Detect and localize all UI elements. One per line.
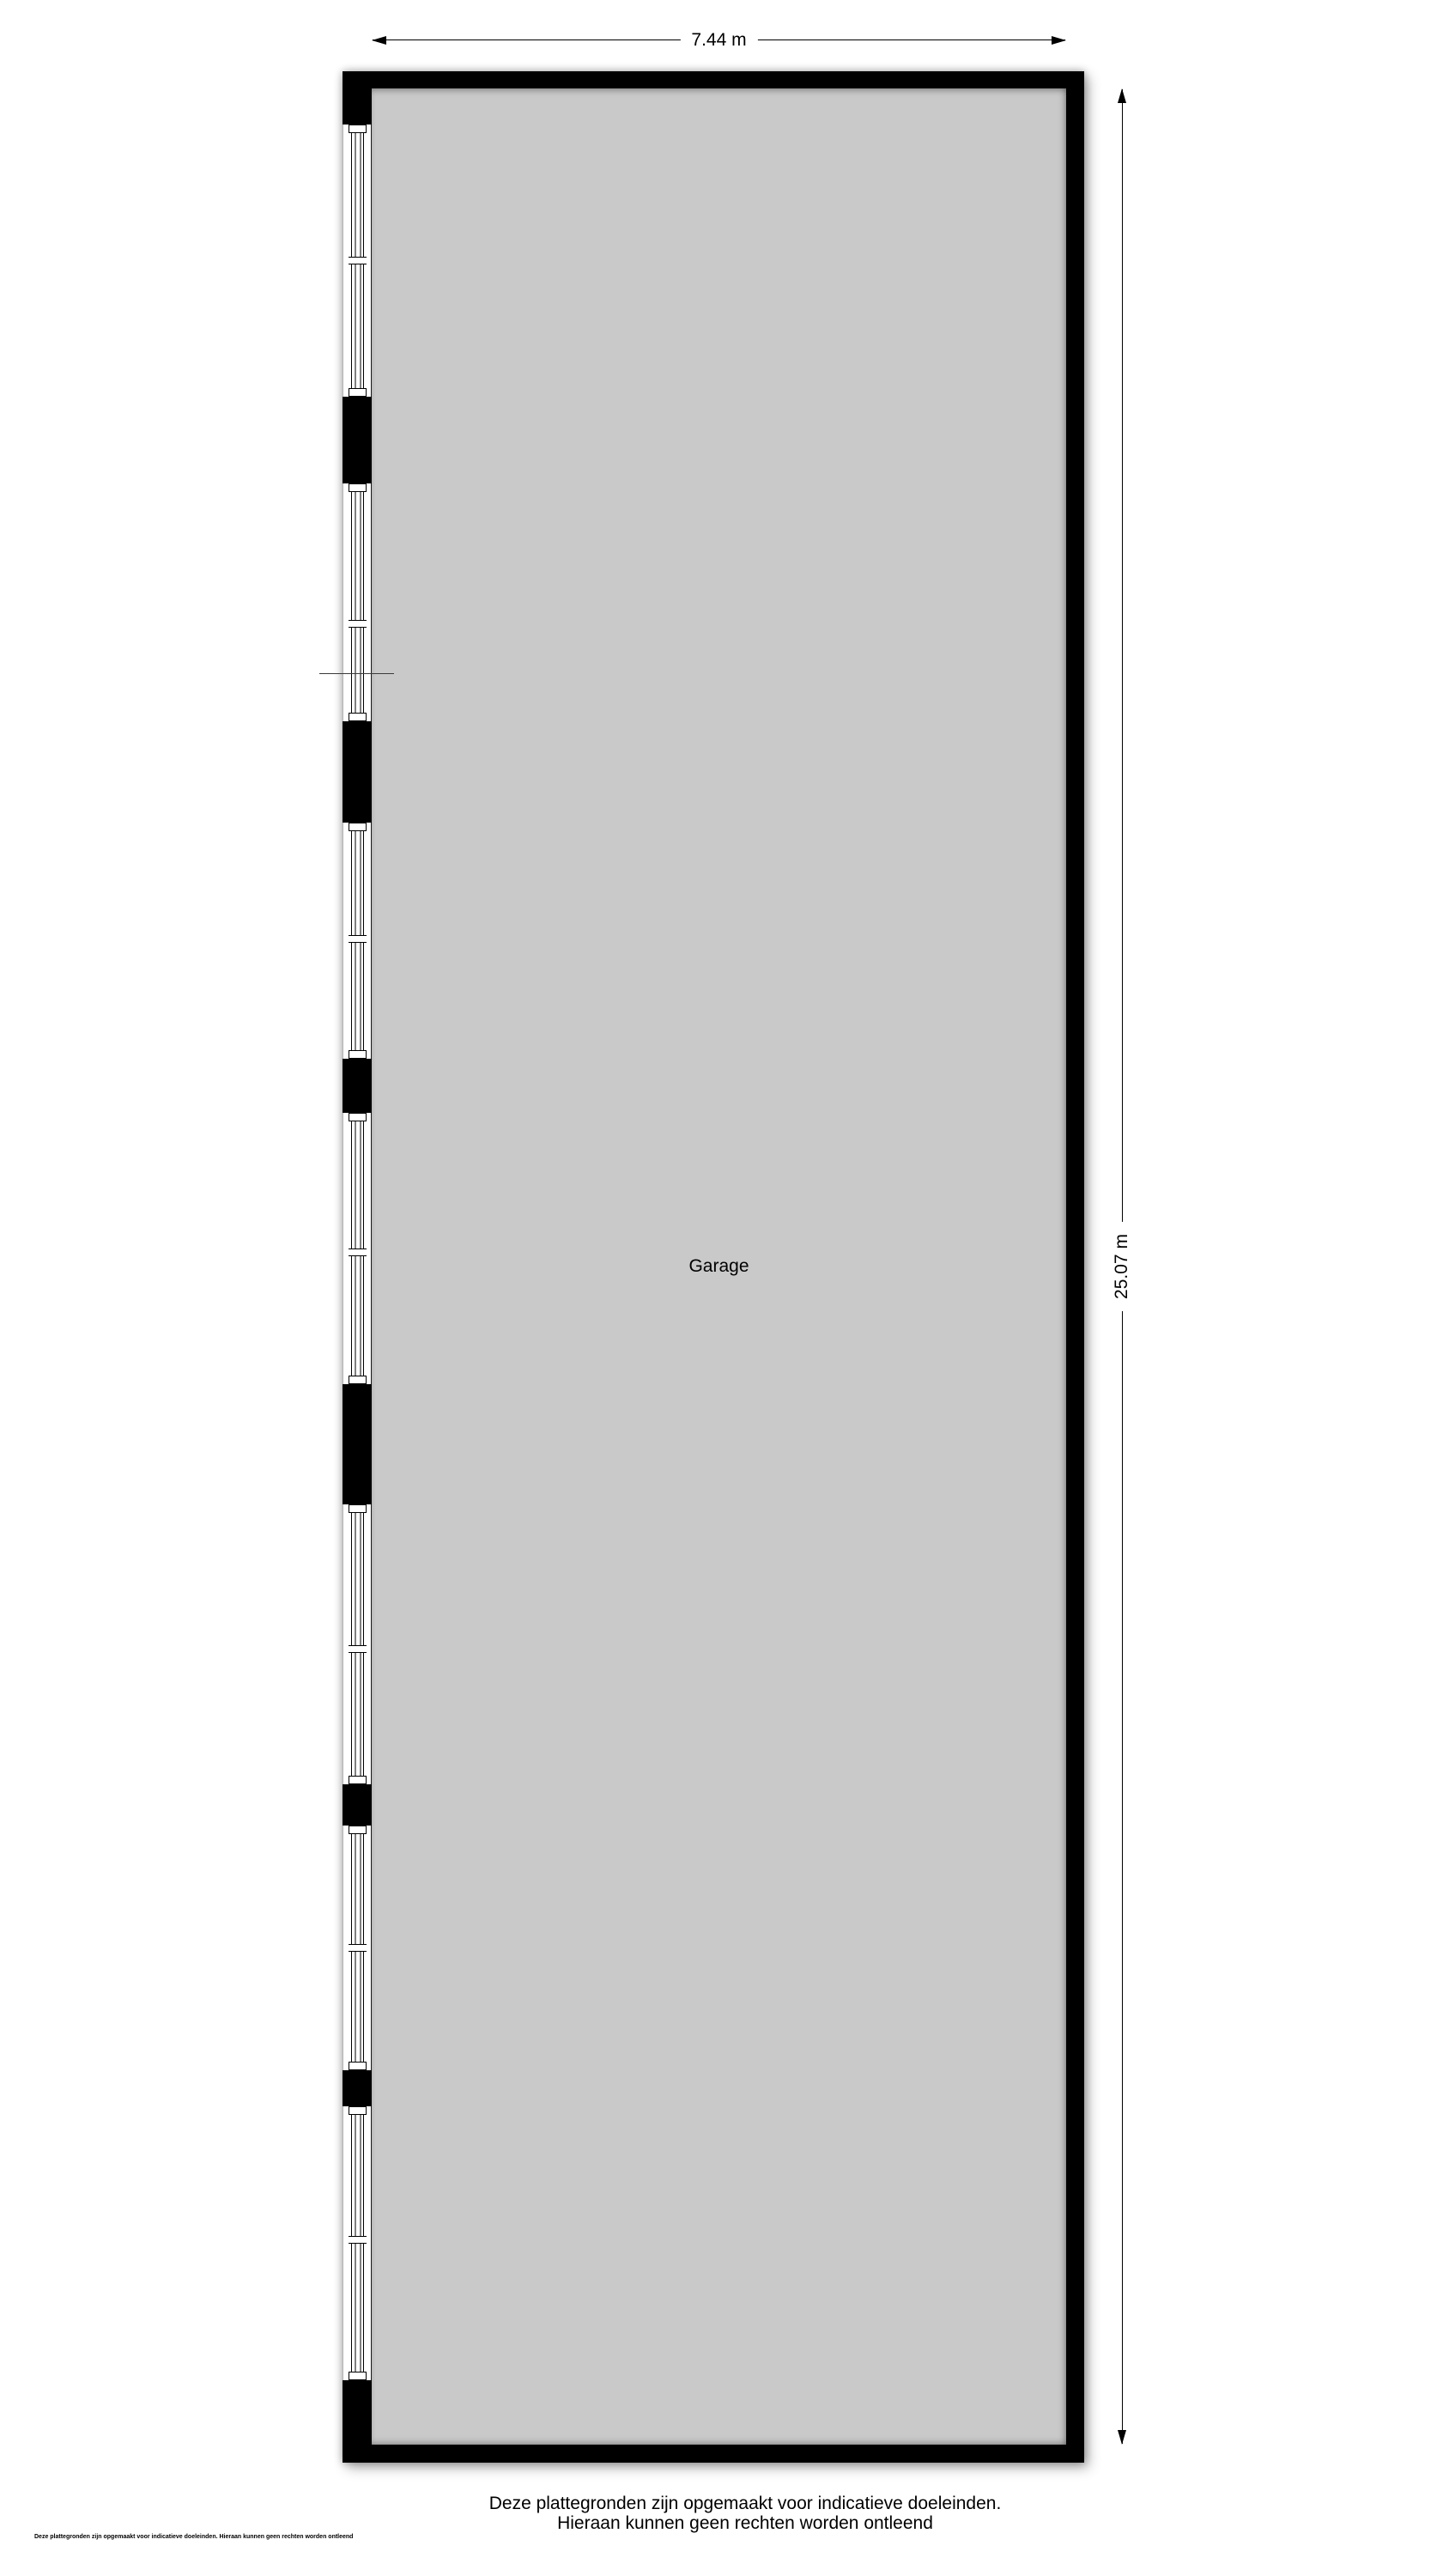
arrow-left-icon <box>372 36 386 45</box>
window-pane <box>355 1504 361 1784</box>
section-line <box>319 673 394 674</box>
horizontal-dimension: 7.44 m <box>372 31 1066 50</box>
window-mullion <box>349 1249 367 1256</box>
window-frame-cap <box>349 1826 367 1834</box>
window <box>343 1504 372 1784</box>
window-mullion <box>349 1645 367 1653</box>
window-frame-cap <box>349 2106 367 2115</box>
window-glass <box>351 483 364 721</box>
disclaimer-line-2: Hieraan kunnen geen rechten worden ontle… <box>21 2513 1449 2533</box>
window-frame-cap <box>349 2372 367 2380</box>
width-dimension-label: 7.44 m <box>680 30 757 51</box>
window <box>343 125 372 397</box>
wall-segment <box>343 1384 372 1504</box>
window-frame-cap <box>349 388 367 397</box>
window <box>343 1826 372 2070</box>
window <box>343 483 372 721</box>
window-frame-cap <box>349 1113 367 1121</box>
window-frame-cap <box>349 713 367 721</box>
arrow-up-icon <box>1118 88 1126 103</box>
window-frame-cap <box>349 1504 367 1513</box>
wall-top <box>343 71 1084 88</box>
garage-floorplan: Garage <box>343 71 1084 2463</box>
window-glass <box>351 1504 364 1784</box>
window <box>343 823 372 1059</box>
arrow-down-icon <box>1118 2430 1126 2445</box>
window-frame-cap <box>349 2062 367 2070</box>
window <box>343 2106 372 2380</box>
window-mullion <box>349 257 367 264</box>
arrow-right-icon <box>1052 36 1066 45</box>
left-wall-strip <box>343 71 372 2463</box>
window-mullion <box>349 2236 367 2244</box>
window <box>343 1113 372 1384</box>
window-frame-cap <box>349 1776 367 1784</box>
window-frame-cap <box>349 1376 367 1384</box>
height-dimension-label: 25.07 m <box>1112 1222 1132 1311</box>
vertical-dimension: 25.07 m <box>1113 88 1131 2445</box>
wall-segment <box>343 397 372 483</box>
wall-segment <box>343 1059 372 1113</box>
wall-right <box>1066 71 1084 2463</box>
wall-segment <box>343 1784 372 1826</box>
disclaimer-line-1: Deze plattegronden zijn opgemaakt voor i… <box>21 2494 1449 2513</box>
wall-bottom <box>343 2445 1084 2463</box>
wall-segment <box>343 71 372 125</box>
wall-segment <box>343 2380 372 2463</box>
wall-segment <box>343 2070 372 2106</box>
window-frame-cap <box>349 1050 367 1059</box>
window-frame-cap <box>349 823 367 831</box>
fine-print-text: Deze plattegronden zijn opgemaakt voor i… <box>34 2534 353 2540</box>
room-label: Garage <box>688 1256 749 1277</box>
window-mullion <box>349 1944 367 1952</box>
window-frame-cap <box>349 483 367 492</box>
window-mullion <box>349 935 367 943</box>
wall-segment <box>343 721 372 823</box>
garage-floor: Garage <box>372 88 1066 2445</box>
window-frame-cap <box>349 125 367 133</box>
window-pane <box>355 483 361 721</box>
window-mullion <box>349 620 367 628</box>
disclaimer-text: Deze plattegronden zijn opgemaakt voor i… <box>21 2494 1449 2533</box>
floorplan-page: 7.44 m 25.07 m Garage Deze plattegronden… <box>0 0 1449 2576</box>
